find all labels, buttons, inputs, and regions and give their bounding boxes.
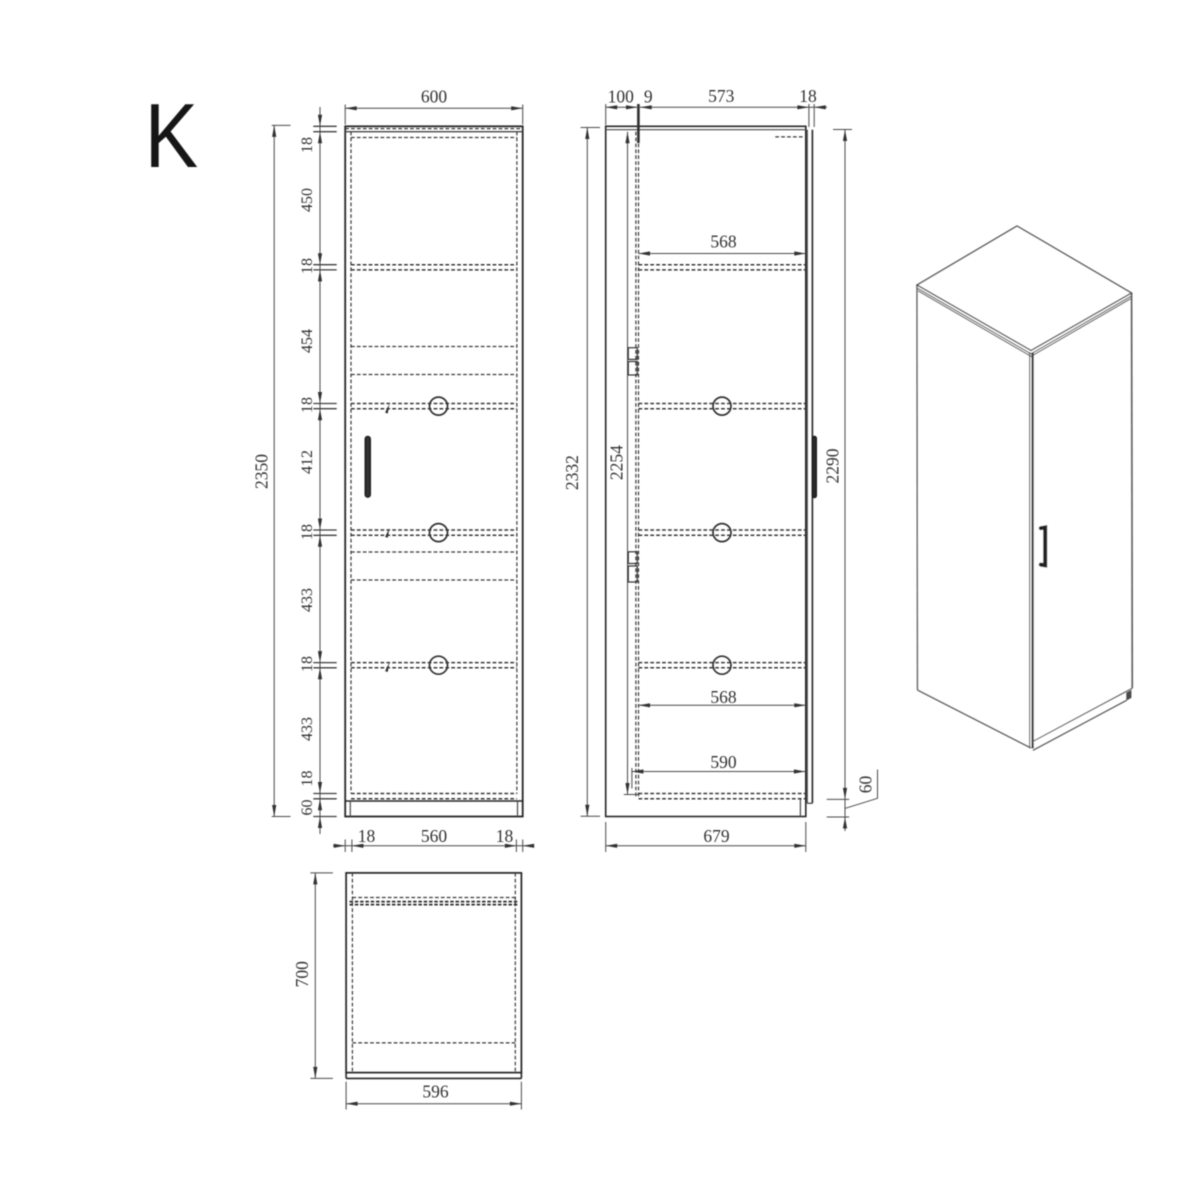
svg-text:596: 596 — [422, 1082, 449, 1102]
svg-text:18: 18 — [299, 656, 316, 672]
svg-text:18: 18 — [358, 826, 376, 846]
svg-text:K: K — [145, 86, 199, 187]
svg-text:450: 450 — [299, 188, 316, 212]
svg-text:590: 590 — [710, 752, 737, 772]
svg-text:433: 433 — [299, 588, 316, 612]
svg-text:600: 600 — [421, 87, 448, 107]
svg-text:18: 18 — [799, 86, 817, 106]
svg-text:573: 573 — [708, 86, 735, 106]
svg-text:2350: 2350 — [252, 454, 272, 489]
svg-text:700: 700 — [292, 961, 312, 988]
svg-text:568: 568 — [710, 687, 737, 707]
svg-text:18: 18 — [496, 826, 514, 846]
svg-text:454: 454 — [299, 329, 316, 353]
svg-text:60: 60 — [299, 800, 316, 816]
svg-text:2254: 2254 — [606, 445, 626, 480]
svg-text:18: 18 — [299, 524, 316, 540]
svg-text:412: 412 — [299, 450, 316, 474]
svg-text:18: 18 — [299, 258, 316, 274]
svg-text:433: 433 — [299, 717, 316, 741]
svg-text:18: 18 — [299, 771, 316, 787]
svg-text:9: 9 — [644, 87, 653, 107]
svg-text:2290: 2290 — [823, 448, 843, 483]
svg-text:18: 18 — [299, 397, 316, 413]
svg-text:2332: 2332 — [562, 455, 582, 490]
svg-text:100: 100 — [608, 87, 635, 107]
svg-text:560: 560 — [421, 826, 448, 846]
svg-text:18: 18 — [299, 137, 316, 153]
svg-text:568: 568 — [710, 232, 737, 252]
svg-text:679: 679 — [703, 826, 730, 846]
svg-text:60: 60 — [856, 776, 876, 794]
